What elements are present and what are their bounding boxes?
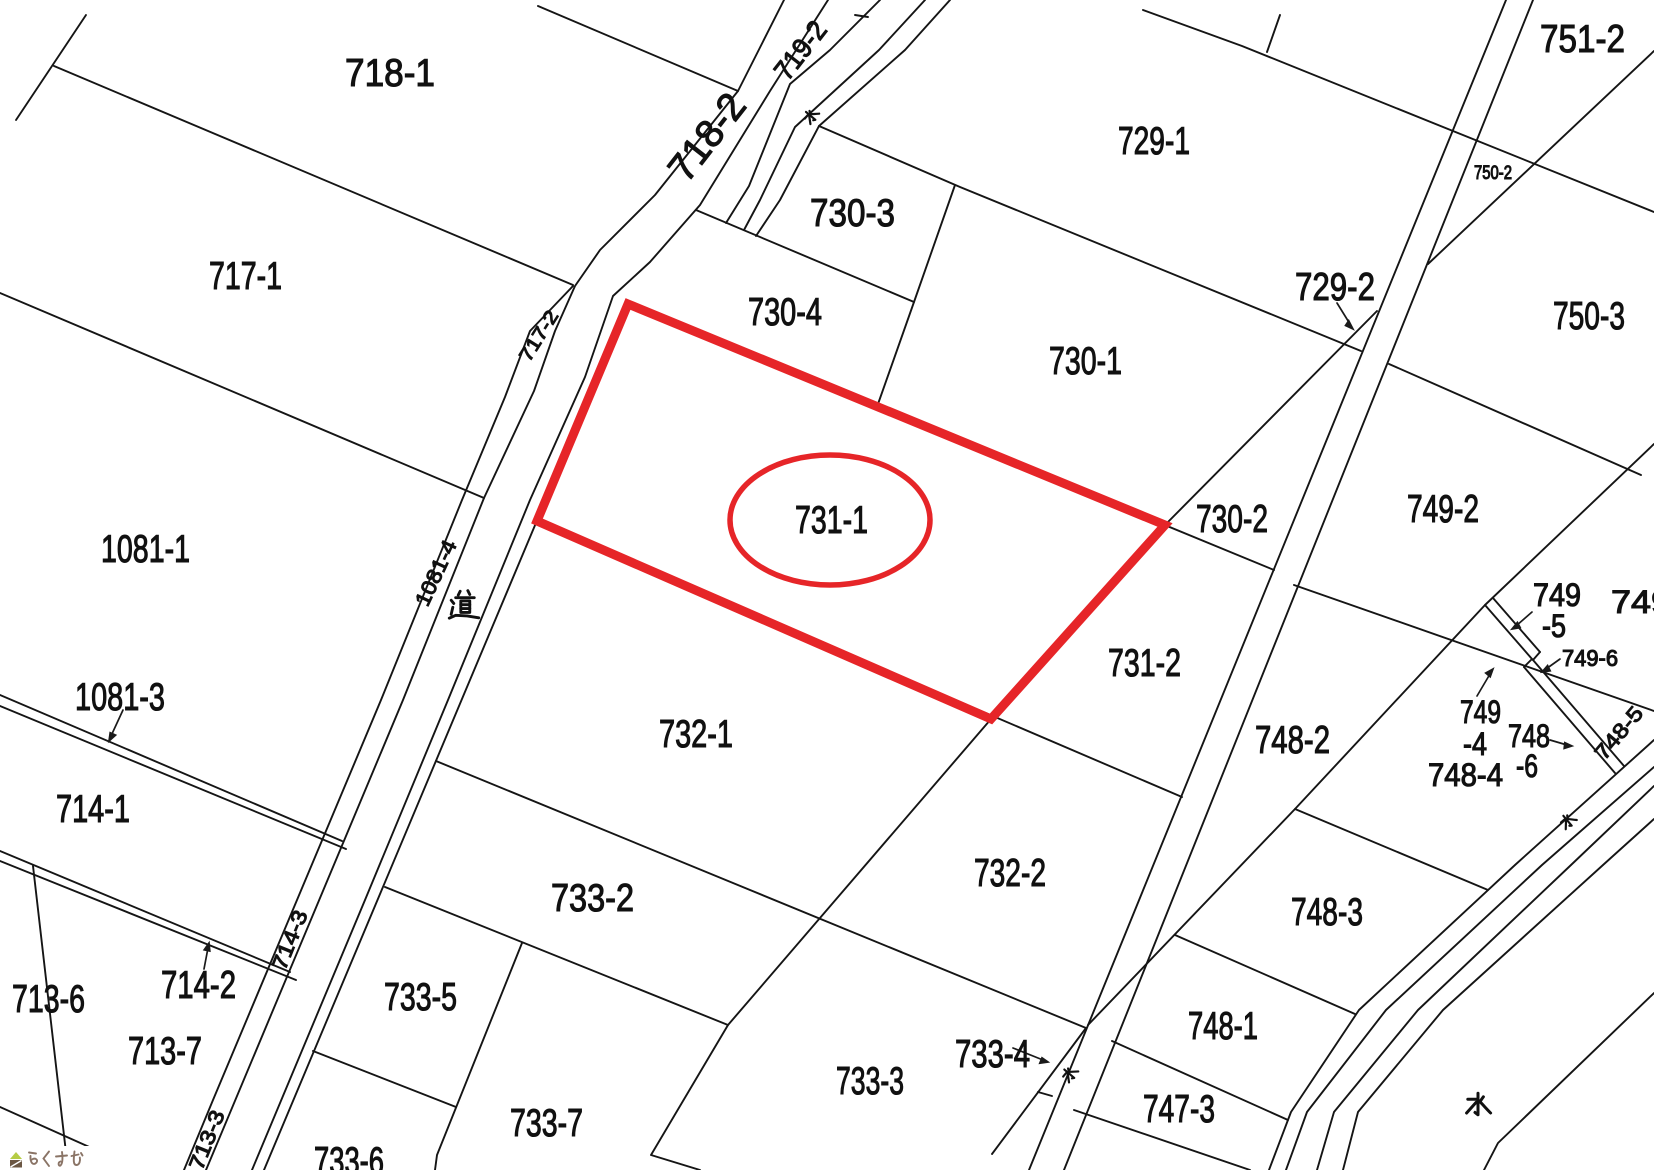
svg-text:751-2: 751-2 <box>1540 18 1625 61</box>
svg-text:714-2: 714-2 <box>161 964 236 1007</box>
svg-text:730-4: 730-4 <box>748 291 822 334</box>
svg-text:750-2: 750-2 <box>1474 163 1512 184</box>
svg-text:733-2: 733-2 <box>551 877 634 920</box>
svg-text:750-3: 750-3 <box>1553 295 1625 338</box>
svg-text:748-2: 748-2 <box>1255 719 1330 762</box>
svg-text:-6: -6 <box>1516 748 1538 784</box>
svg-text:730-3: 730-3 <box>810 192 895 235</box>
svg-text:748-4: 748-4 <box>1428 757 1503 793</box>
svg-text:729-2: 729-2 <box>1295 266 1375 309</box>
svg-text:733-7: 733-7 <box>510 1102 583 1145</box>
svg-text:749: 749 <box>1611 584 1654 620</box>
svg-text:749: 749 <box>1460 694 1501 730</box>
svg-text:-5: -5 <box>1542 608 1566 644</box>
svg-text:713-6: 713-6 <box>12 978 85 1021</box>
svg-text:731-2: 731-2 <box>1108 642 1181 685</box>
svg-text:731-1: 731-1 <box>795 499 868 542</box>
svg-text:732-1: 732-1 <box>659 713 733 756</box>
svg-text:730-1: 730-1 <box>1049 340 1122 383</box>
svg-text:749-2: 749-2 <box>1407 488 1479 531</box>
svg-text:714-1: 714-1 <box>56 788 130 831</box>
svg-text:713-7: 713-7 <box>128 1030 202 1073</box>
svg-text:733-5: 733-5 <box>384 976 457 1019</box>
svg-text:747-3: 747-3 <box>1143 1088 1215 1131</box>
svg-text:748-1: 748-1 <box>1188 1005 1258 1048</box>
svg-text:1081-3: 1081-3 <box>75 676 165 719</box>
svg-text:718-1: 718-1 <box>345 52 435 95</box>
svg-text:748-3: 748-3 <box>1291 891 1363 934</box>
svg-text:1081-1: 1081-1 <box>101 528 190 571</box>
svg-text:733-4: 733-4 <box>955 1033 1030 1076</box>
svg-text:729-1: 729-1 <box>1118 120 1190 163</box>
svg-text:749-6: 749-6 <box>1562 645 1618 671</box>
svg-text:733-6: 733-6 <box>314 1140 384 1170</box>
svg-text:717-1: 717-1 <box>209 255 282 298</box>
svg-text:730-2: 730-2 <box>1196 498 1268 541</box>
svg-text:733-3: 733-3 <box>836 1060 904 1103</box>
svg-text:732-2: 732-2 <box>974 852 1046 895</box>
